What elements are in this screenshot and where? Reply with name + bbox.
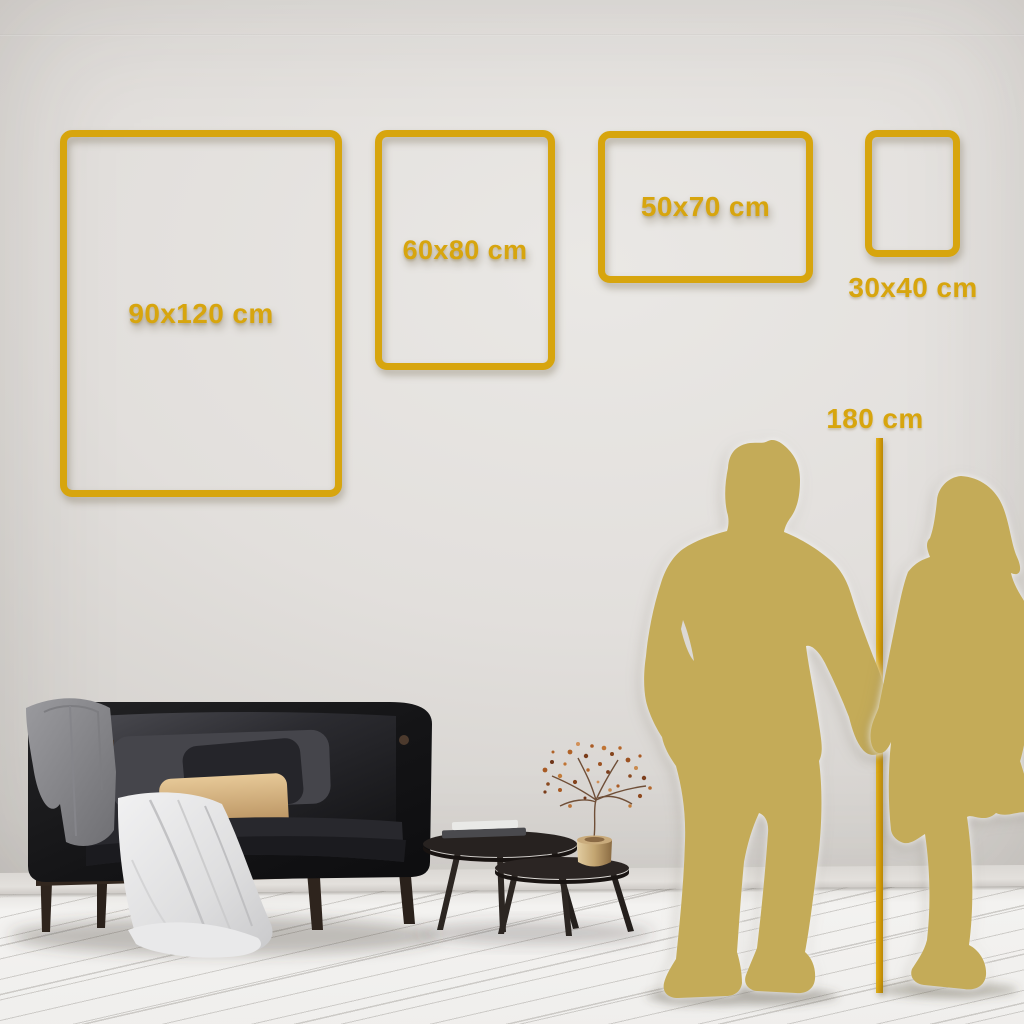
man-silhouette	[644, 440, 892, 998]
woman-silhouette	[871, 476, 1024, 989]
silhouettes-layer	[0, 0, 1024, 1024]
size-guide-scene: 90x120 cm 60x80 cm 50x70 cm 30x40 cm 180…	[0, 0, 1024, 1024]
